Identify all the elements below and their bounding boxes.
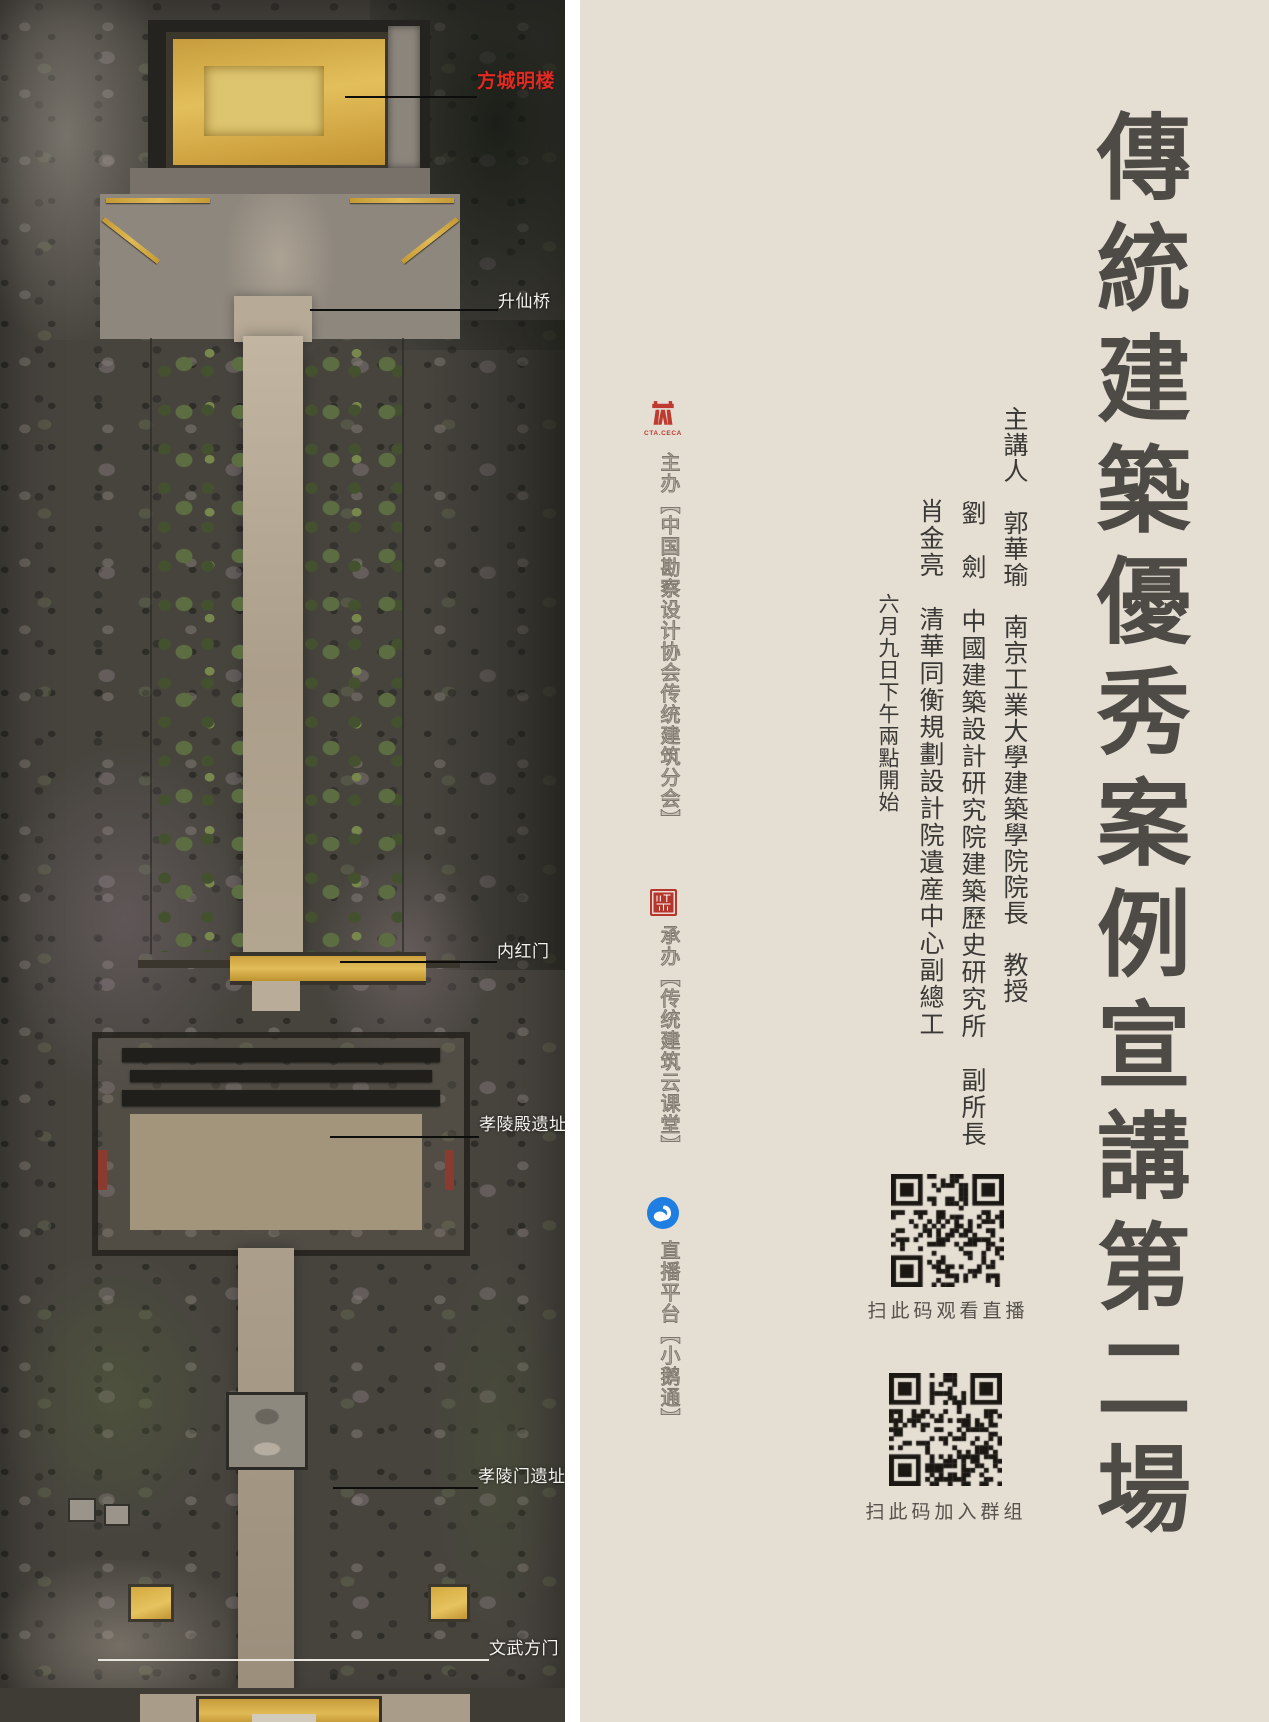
event-time-column: 六月九日下午兩點開始 bbox=[873, 593, 903, 893]
hall-ruin-band bbox=[122, 1090, 440, 1106]
speaker-column-xiaojinliang: 肖金亮 清華同衡規劃設計院遺産中心副總工 bbox=[911, 498, 947, 1118]
gray-pavilion bbox=[104, 1504, 130, 1526]
label-leader-line bbox=[330, 1136, 479, 1138]
neihongmen-wall-left bbox=[138, 960, 230, 968]
neihongmen-path bbox=[252, 981, 300, 1011]
speaker-column-lead: 主講人 郭華瑜 南京工業大學建築學院院長 教授 bbox=[995, 406, 1031, 1026]
photo-label-shengxianqiao: 升仙桥 bbox=[498, 293, 551, 312]
xiaolingmen-ruin bbox=[226, 1392, 308, 1470]
label-leader-line bbox=[340, 961, 497, 963]
live-platform-label: 直播平台【小鹅通】 bbox=[654, 1240, 683, 1460]
gold-wall-right bbox=[350, 198, 454, 203]
red-seal-icon bbox=[650, 889, 677, 916]
qr-live-caption: 扫此码观看直播 bbox=[858, 1296, 1038, 1323]
terrace-strip bbox=[130, 168, 430, 196]
gold-pavilion-right bbox=[428, 1584, 470, 1622]
side-wall-right bbox=[402, 338, 404, 954]
green-tint-bottom-right bbox=[430, 1250, 565, 1640]
qr-group-caption: 扫此码加入群组 bbox=[856, 1497, 1036, 1524]
photo-label-xiaolingdian-yizhi: 孝陵殿遗址 bbox=[479, 1116, 565, 1135]
red-wall-fragment bbox=[98, 1150, 107, 1190]
fangcheng-inner-court bbox=[204, 66, 324, 136]
hall-ruin-band bbox=[130, 1070, 432, 1082]
label-leader-line bbox=[310, 309, 498, 311]
photo-label-neihongmen: 内红门 bbox=[497, 943, 550, 962]
poster-page: 方城明楼 升仙桥 内红门 孝陵殿遗址 孝陵门遗址 文武方门 傳統建築優秀案例宣講… bbox=[0, 0, 1269, 1722]
side-wall-left bbox=[150, 338, 152, 954]
qr-code-group bbox=[889, 1373, 1002, 1486]
gold-pavilion-left bbox=[128, 1584, 174, 1622]
tree-row-right bbox=[303, 340, 402, 952]
speaker-column-liujian: 劉 劍 中國建築設計研究院建築歷史研究所 副所長 bbox=[953, 500, 989, 1160]
label-leader-line bbox=[98, 1659, 489, 1661]
poster-title: 傳統建築優秀案例宣講第二場 bbox=[1086, 108, 1182, 1508]
green-tint-bottom-left bbox=[0, 1250, 230, 1540]
gold-wall-left bbox=[106, 198, 210, 203]
co-organizer-label: 承办【传统建筑云课堂】 bbox=[654, 925, 683, 1185]
label-leader-line bbox=[345, 96, 477, 98]
wenwufangmen-path bbox=[252, 1714, 316, 1722]
photo-label-fangchengminglou: 方城明楼 bbox=[477, 72, 555, 93]
gray-pavilion bbox=[68, 1498, 96, 1522]
hall-ruin-band bbox=[122, 1048, 440, 1062]
photo-label-xiaolingmen-yizhi: 孝陵门遗址 bbox=[478, 1468, 565, 1487]
red-wall-fragment bbox=[445, 1150, 454, 1190]
dark-edge-right bbox=[425, 320, 565, 970]
qr-code-live bbox=[891, 1174, 1004, 1287]
cta-ceca-caption: CTA.CECA bbox=[634, 430, 692, 437]
cta-ceca-emblem-icon bbox=[649, 400, 677, 428]
photo-label-wenwufangmen: 文武方门 bbox=[489, 1640, 559, 1659]
courtyard-floor bbox=[130, 1114, 422, 1230]
aerial-photo-panel: 方城明楼 升仙桥 内红门 孝陵殿遗址 孝陵门遗址 文武方门 bbox=[0, 0, 565, 1722]
goose-icon bbox=[647, 1197, 679, 1229]
tree-row-left bbox=[156, 340, 243, 952]
sacred-way-path bbox=[243, 336, 303, 958]
label-leader-line bbox=[333, 1487, 478, 1489]
host-organizer-label: 主办【中国勘察设计协会传统建筑分会】 bbox=[654, 452, 683, 872]
